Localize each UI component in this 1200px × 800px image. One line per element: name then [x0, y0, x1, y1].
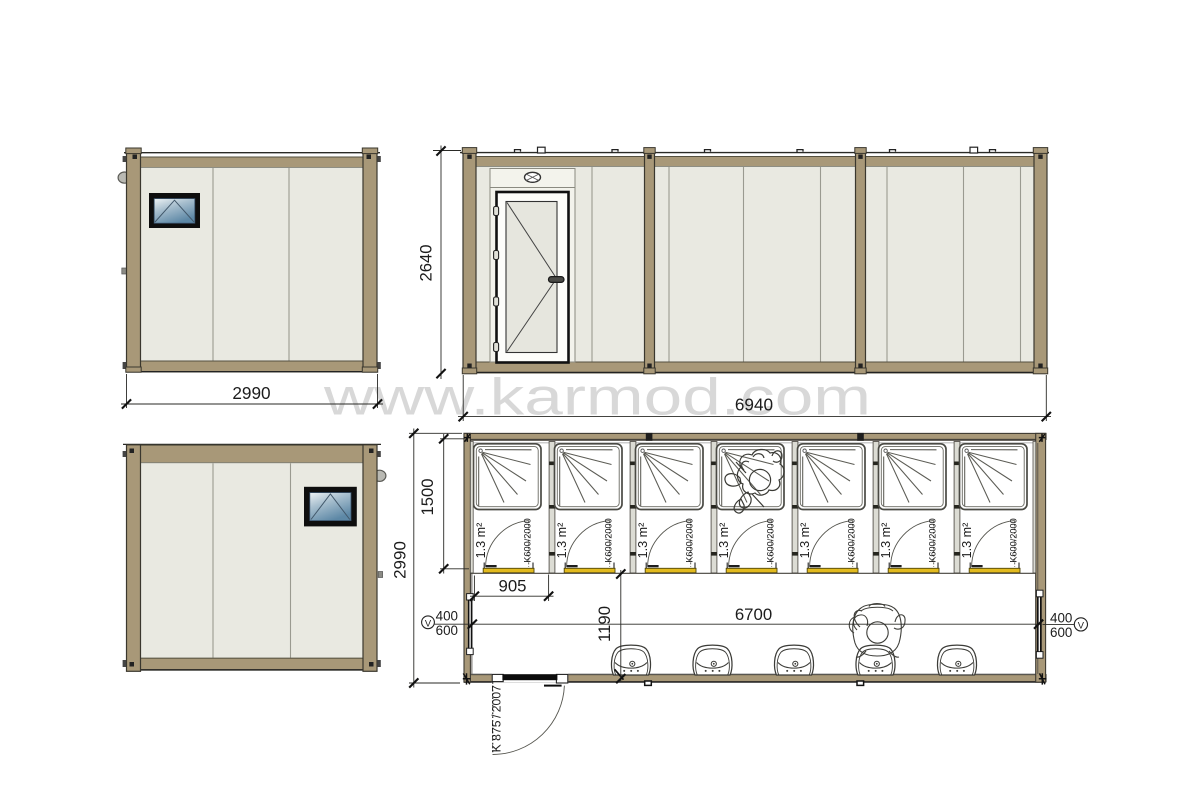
svg-text:6940: 6940	[735, 395, 773, 415]
svg-text:1.3 m²: 1.3 m²	[717, 523, 731, 559]
svg-text:K600/2000: K600/2000	[927, 518, 937, 562]
svg-text:1.3 m²: 1.3 m²	[798, 523, 812, 559]
svg-text:1.3 m²: 1.3 m²	[636, 523, 650, 559]
svg-text:2640: 2640	[417, 245, 436, 282]
svg-text:K600/2000: K600/2000	[603, 518, 613, 562]
svg-text:2990: 2990	[232, 383, 270, 403]
svg-text:K600/2000: K600/2000	[846, 518, 856, 562]
svg-text:V: V	[1078, 620, 1085, 631]
svg-text:1.3 m²: 1.3 m²	[879, 523, 893, 559]
svg-text:1.3 m²: 1.3 m²	[474, 523, 488, 559]
svg-text:1.3 m²: 1.3 m²	[960, 523, 974, 559]
svg-text:905: 905	[499, 576, 527, 595]
svg-text:600: 600	[436, 623, 458, 638]
svg-text:1.3 m²: 1.3 m²	[555, 523, 569, 559]
svg-text:400: 400	[436, 609, 458, 624]
svg-text:400: 400	[1050, 611, 1072, 626]
svg-text:1500: 1500	[418, 479, 437, 516]
svg-text:600: 600	[1050, 625, 1072, 640]
svg-text:K600/2000: K600/2000	[765, 518, 775, 562]
svg-text:K600/2000: K600/2000	[684, 518, 694, 562]
svg-text:K600/2000: K600/2000	[1008, 518, 1018, 562]
svg-text:www.karmod.com: www.karmod.com	[323, 369, 871, 427]
svg-text:V: V	[425, 617, 432, 628]
svg-text:K 875 / 2007: K 875 / 2007	[490, 685, 504, 752]
svg-text:6700: 6700	[735, 605, 772, 624]
svg-text:2990: 2990	[391, 541, 410, 579]
svg-text:K600/2000: K600/2000	[522, 518, 532, 562]
